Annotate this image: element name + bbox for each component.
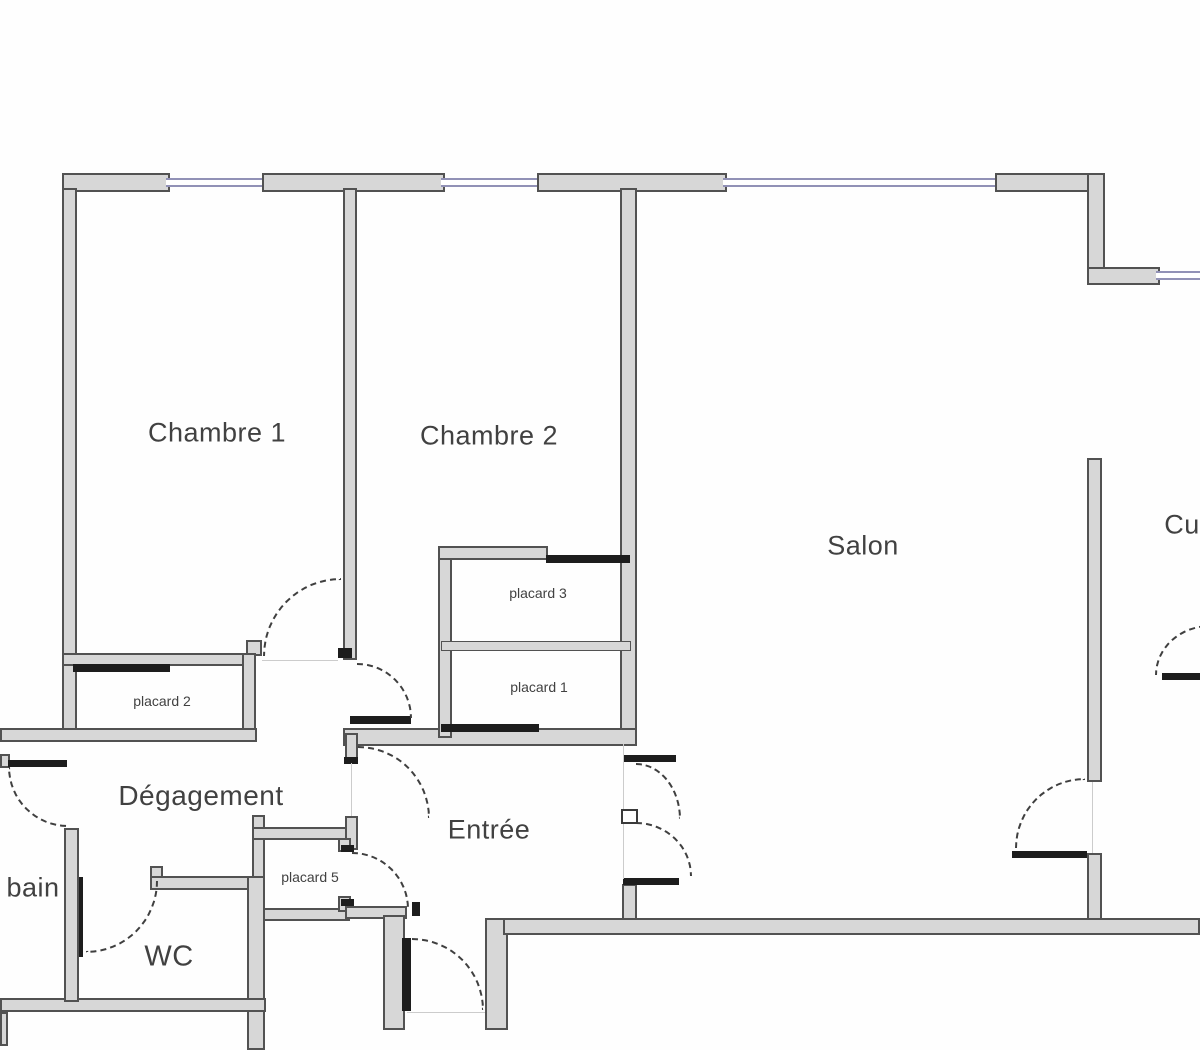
wall-salon-cuisine-upper bbox=[1087, 458, 1102, 782]
wall-top-1 bbox=[62, 173, 170, 192]
wall-wc-right bbox=[247, 876, 265, 1050]
room-label-wc: WC bbox=[144, 941, 193, 974]
room-label-chambre1: Chambre 1 bbox=[148, 418, 286, 449]
wall-placard3-top bbox=[438, 546, 548, 560]
window-kitchen bbox=[1156, 271, 1200, 280]
closet-label-placard1: placard 1 bbox=[510, 679, 568, 695]
bain-door-leaf bbox=[8, 760, 67, 767]
placard2-door-leaf bbox=[73, 664, 170, 672]
wall-degagement-top bbox=[0, 728, 257, 742]
wall-placard5-bottom bbox=[252, 908, 350, 921]
front-door-leaf bbox=[402, 938, 411, 1011]
closet-label-placard2: placard 2 bbox=[133, 693, 191, 709]
vestibule-jamb-tick bbox=[412, 902, 420, 916]
salon-cuisine-door-leaf bbox=[1012, 851, 1087, 858]
chambre2-door-swing-arc bbox=[357, 663, 412, 718]
room-label-cuisine: Cu bbox=[1164, 510, 1200, 541]
closet-label-placard3: placard 3 bbox=[509, 585, 567, 601]
wall-jog-horizontal bbox=[1087, 267, 1160, 285]
wall-chambre2-salon bbox=[620, 188, 637, 744]
degagement-entree-door-swing-arc bbox=[358, 746, 430, 818]
wall-salon-bottom bbox=[503, 918, 1200, 935]
wall-bottom-left-stub bbox=[0, 1012, 8, 1046]
room-label-chambre2: Chambre 2 bbox=[420, 421, 558, 452]
placard3-door-leaf bbox=[546, 555, 630, 563]
room-label-entree: Entrée bbox=[448, 815, 531, 846]
salon-cuisine-door-swing-arc bbox=[1015, 778, 1085, 848]
vestibule-seam bbox=[407, 1012, 485, 1013]
wall-wc-bottom bbox=[0, 998, 266, 1012]
window-top-1 bbox=[166, 178, 266, 187]
degagement-entree-door-seam bbox=[351, 763, 352, 816]
window-top-2 bbox=[441, 178, 541, 187]
entree-salon-door-swing-arc-upper bbox=[636, 763, 681, 819]
room-label-bain: bain bbox=[6, 873, 59, 904]
placard1-door-leaf bbox=[441, 724, 539, 732]
placard5-door-swing-arc bbox=[352, 852, 409, 909]
room-label-salon: Salon bbox=[827, 531, 899, 562]
wall-placard5-top bbox=[252, 827, 347, 840]
wall-wc-top-step bbox=[150, 866, 163, 878]
chambre1-door-swing-arc bbox=[263, 578, 341, 656]
room-label-degagement: Dégagement bbox=[118, 780, 283, 812]
placard5-door-jamb-top bbox=[341, 845, 354, 852]
floor-plan: Chambre 1 Chambre 2 Salon Cu Dégagement … bbox=[0, 0, 1200, 1050]
entree-salon-door-jamb-bottom bbox=[623, 878, 679, 885]
closet-label-placard5: placard 5 bbox=[281, 869, 339, 885]
wall-bain-wc-divider bbox=[64, 828, 79, 1002]
wall-placard-divider bbox=[441, 641, 631, 651]
wall-chambre1-chambre2 bbox=[343, 188, 357, 660]
cuisine-door-swing-arc bbox=[1155, 625, 1200, 675]
window-top-3 bbox=[723, 178, 999, 187]
front-door-swing-arc bbox=[412, 938, 484, 1010]
entree-salon-door-swing-arc-lower bbox=[636, 822, 692, 876]
wall-wc-top bbox=[150, 876, 253, 890]
entree-salon-door-hinge bbox=[621, 809, 638, 824]
salon-cuisine-door-seam bbox=[1092, 782, 1093, 853]
entree-salon-door-jamb-top bbox=[624, 755, 676, 762]
chambre1-door-seam bbox=[262, 660, 338, 661]
bain-door-swing-arc bbox=[8, 767, 68, 827]
